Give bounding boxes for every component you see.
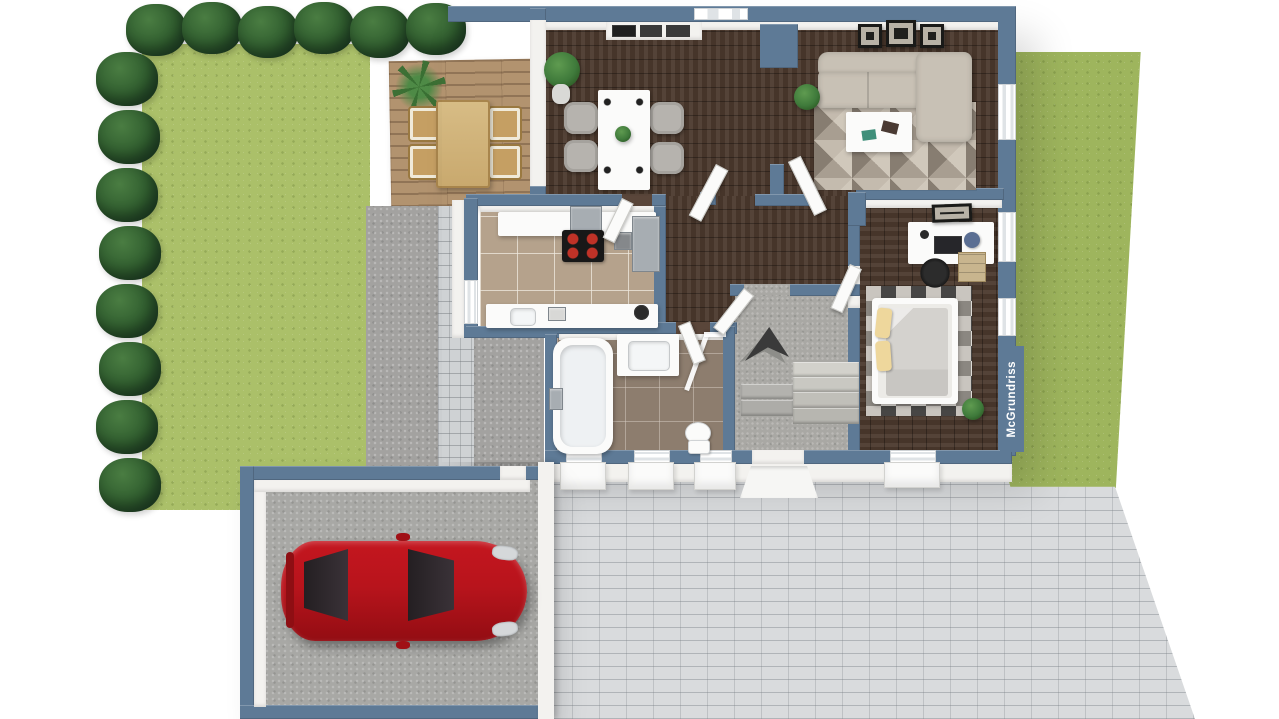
window-sill xyxy=(694,462,736,490)
built-in-oven xyxy=(612,25,636,37)
bed-duvet xyxy=(886,308,948,396)
hedge-bush xyxy=(98,110,160,164)
kettle xyxy=(634,305,649,320)
hedge-bush xyxy=(99,458,161,512)
front-door-opening xyxy=(752,450,804,464)
bed-pillow xyxy=(874,307,892,338)
wall-face-bedroom-top xyxy=(858,200,1002,208)
stair-landing-step xyxy=(741,400,793,416)
hedge-bush xyxy=(96,168,158,222)
window-kitchen xyxy=(464,280,478,324)
car-windshield xyxy=(408,549,454,621)
bedroom-plant xyxy=(962,398,984,420)
hedge-bush xyxy=(99,342,161,396)
watermark-label: McGrundriss xyxy=(1006,361,1018,437)
hedge-bush xyxy=(238,6,298,58)
built-in-appliance xyxy=(666,25,690,37)
stair-step xyxy=(793,408,859,424)
stair-step xyxy=(793,362,859,377)
kitchen-sink xyxy=(510,308,536,326)
wall-picture xyxy=(886,20,916,47)
houseplant xyxy=(794,84,820,110)
garage-patio-wall xyxy=(538,462,554,719)
sofa-chaise xyxy=(916,52,972,142)
vanity-sink xyxy=(628,341,670,371)
hedge-bush xyxy=(350,6,410,58)
terrace-door-face xyxy=(530,20,546,196)
drawer-unit xyxy=(958,252,986,282)
garage-wall-bottom xyxy=(240,705,544,719)
coffee-table xyxy=(846,112,912,152)
window-right-office xyxy=(998,212,1016,262)
tub-faucet xyxy=(549,388,563,410)
dining-chair xyxy=(564,102,598,134)
dining-chair xyxy=(650,102,684,134)
car-mirror xyxy=(396,641,410,649)
hedge-bush xyxy=(96,400,158,454)
path-concrete xyxy=(366,206,442,506)
hedge-bush xyxy=(99,226,161,280)
stair-step xyxy=(793,392,859,408)
toilet-tank xyxy=(688,440,710,454)
cooktop xyxy=(562,230,604,262)
watermark-band: McGrundriss xyxy=(1000,346,1024,452)
table-centerpiece xyxy=(615,126,631,142)
wall-face-kitchen-outer xyxy=(452,200,464,338)
window-right-bedroom xyxy=(998,298,1016,336)
bedroom-wall-picture xyxy=(932,203,973,222)
hedge-bush xyxy=(96,52,158,106)
car-mirror xyxy=(396,533,410,541)
wall-picture xyxy=(858,24,882,48)
garage-side-door-opening xyxy=(500,466,526,480)
window-sill xyxy=(628,462,674,490)
garage-wall-face-left xyxy=(254,492,266,707)
hedge-bush xyxy=(294,2,354,54)
office-chair xyxy=(918,256,952,290)
window-right-living xyxy=(998,84,1016,140)
window-sill xyxy=(560,462,606,490)
desk-globe xyxy=(964,232,980,248)
book xyxy=(861,129,876,141)
garage-wall-top xyxy=(240,466,544,480)
hedge-bush xyxy=(96,284,158,338)
front-door-threshold xyxy=(740,466,818,498)
potted-plant xyxy=(544,52,580,88)
floorplan-scene: McGrundriss xyxy=(0,0,1279,719)
dining-chair xyxy=(564,140,598,172)
refrigerator xyxy=(632,216,660,272)
wall-picture xyxy=(920,24,944,48)
dining-chair xyxy=(650,142,684,174)
built-in-microwave xyxy=(640,25,662,37)
hedge-bush xyxy=(126,4,186,56)
garage-wall-face-top xyxy=(254,480,530,492)
garage-wall-left xyxy=(240,466,254,719)
hall-wall-stub xyxy=(848,192,866,226)
toaster xyxy=(548,307,566,321)
garden-lawn-left xyxy=(142,44,370,510)
window-sill xyxy=(884,462,940,488)
kitchen-hood xyxy=(570,206,602,232)
chimney-block xyxy=(760,24,798,68)
car-spoiler xyxy=(286,552,294,628)
wall-bathroom-right xyxy=(723,326,735,458)
stair-landing-step xyxy=(741,384,793,399)
hedge-bush xyxy=(182,2,242,54)
stair-step xyxy=(793,377,859,392)
patio-pavers xyxy=(545,482,1195,719)
plant-pot xyxy=(552,84,570,104)
desk-mug xyxy=(920,230,929,239)
bathtub-inner xyxy=(560,345,606,447)
bed-pillow xyxy=(875,341,892,372)
window-top-wall xyxy=(694,8,748,20)
